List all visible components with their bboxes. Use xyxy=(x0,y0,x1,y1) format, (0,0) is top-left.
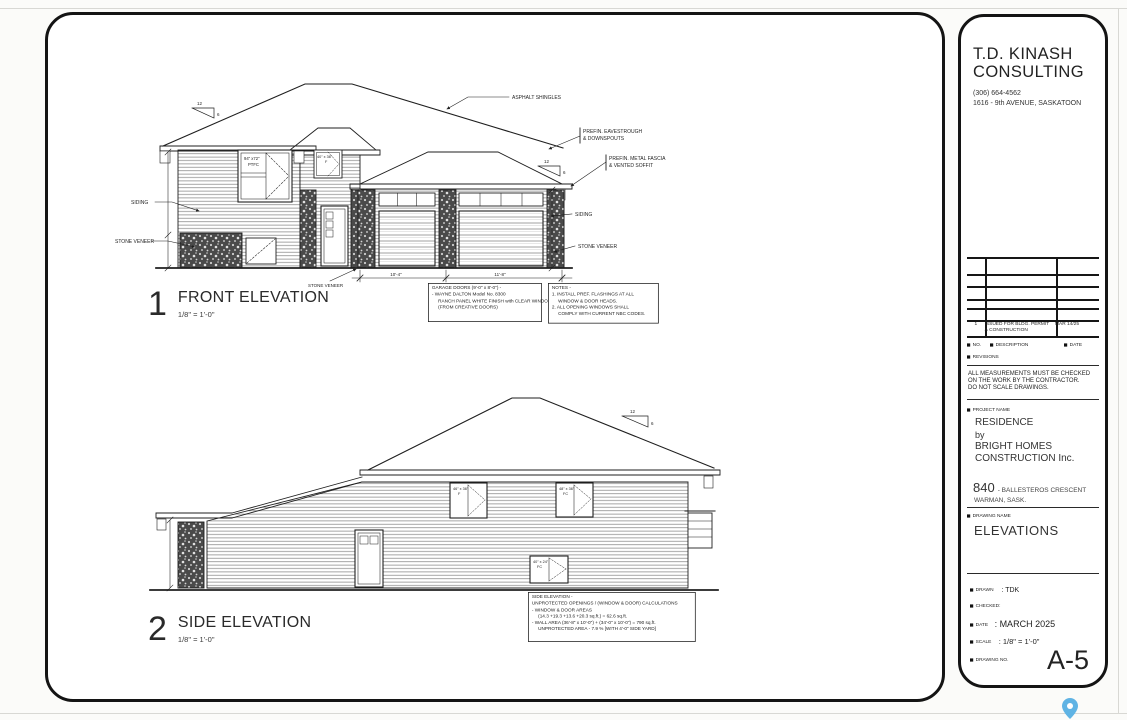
note-line: UNPROTECTED AREA - 7.9 % [WITH 4'-0" SID… xyxy=(532,627,692,633)
col-header-date: DATE xyxy=(1064,343,1082,348)
rev-table-line xyxy=(967,336,1099,338)
front-elevation-title: 1 FRONT ELEVATION 1/8" = 1'-0" xyxy=(148,288,329,320)
drawn-value: : TDK xyxy=(1001,587,1019,594)
note-line: (FROM CREATIVE DOORS) xyxy=(432,305,538,311)
side-window1-size: 46" x 36" xyxy=(453,487,469,491)
garage-dim-left: 10'-4" xyxy=(390,272,402,277)
rev-table-line xyxy=(967,299,1099,301)
firm-address: 1616 - 9th AVENUE, SASKATOON xyxy=(973,100,1081,107)
garage-doors-note: GARAGE DOORS (9'-0" x 8'-0") - - WAYNE D… xyxy=(428,283,542,322)
drawing-no-row: DRAWING NO. xyxy=(970,657,1018,663)
revision-row: 1 ISSUED FOR BLDG. PERMIT& CONSTRUCTION … xyxy=(967,322,1095,334)
square-bullet-icon xyxy=(1064,343,1067,346)
label-stone-right: STONE VENEER xyxy=(578,244,617,250)
title-block: T.D. KINASH CONSULTING (306) 664-4562 16… xyxy=(958,14,1108,688)
tb-divider xyxy=(967,573,1099,574)
date-label: DATE xyxy=(970,623,988,628)
label-fascia-line2: & VENTED SOFFIT xyxy=(609,163,653,169)
drawn-row: DRAWN : TDK xyxy=(970,587,1019,594)
scale-label: SCALE xyxy=(970,640,991,645)
project-line4: CONSTRUCTION Inc. xyxy=(975,453,1074,464)
disclaimer-line1: ALL MEASUREMENTS MUST BE CHECKED xyxy=(968,371,1090,377)
side-elevation-title: 2 SIDE ELEVATION 1/8" = 1'-0" xyxy=(148,613,311,645)
side-slope-run: 12 xyxy=(630,409,636,414)
revision-number: 1 xyxy=(967,322,985,334)
site-address: 840 - BALLESTEROS CRESCENT xyxy=(973,480,1086,495)
label-siding-right: SIDING xyxy=(575,212,592,218)
square-bullet-icon xyxy=(970,623,973,626)
side-window3-size: 40" x 24" xyxy=(533,560,549,564)
main-window-size: 94" x72" xyxy=(244,156,260,161)
square-bullet-icon xyxy=(970,658,973,661)
square-bullet-icon xyxy=(967,343,970,346)
label-stone-left: STONE VENEER xyxy=(115,239,154,245)
square-bullet-icon xyxy=(967,514,970,517)
drawing-name-label: DRAWING NAME xyxy=(967,514,1011,519)
drawing-no-label: DRAWING NO. xyxy=(970,658,1008,663)
tb-divider xyxy=(967,365,1099,366)
date-row: DATE : MARCH 2025 xyxy=(970,619,1055,629)
label-siding-left: SIDING xyxy=(131,200,148,206)
checked-label: CHECKED: xyxy=(970,604,1000,609)
side-slope-rise: 6 xyxy=(651,421,654,426)
front-elevation-name: FRONT ELEVATION xyxy=(178,289,329,307)
entry-window-size: 40" x 36" xyxy=(317,155,333,159)
project-line3: BRIGHT HOMES xyxy=(975,441,1052,452)
project-name-label: PROJECT NAME xyxy=(967,408,1010,413)
square-bullet-icon xyxy=(990,343,993,346)
side-elevation-name: SIDE ELEVATION xyxy=(178,614,311,632)
front-elevation-scale: 1/8" = 1'-0" xyxy=(178,310,329,319)
side-elevation-number: 2 xyxy=(148,613,167,645)
firm-phone: (306) 664-4562 xyxy=(973,90,1021,97)
square-bullet-icon xyxy=(970,588,973,591)
front-slope-rise-right: 6 xyxy=(563,170,566,175)
note-line: UNPROTECTED OPENINGS / (WINDOW & DOOR) C… xyxy=(532,601,692,607)
disclaimer-line3: DO NOT SCALE DRAWINGS. xyxy=(968,385,1049,391)
disclaimer-line2: ON THE WORK BY THE CONTRACTOR. xyxy=(968,378,1080,384)
label-asphalt-shingles: ASPHALT SHINGLES xyxy=(512,95,562,101)
sheet-number: A-5 xyxy=(1047,645,1089,676)
revision-desc-line2: & CONSTRUCTION xyxy=(985,328,1028,333)
rev-table-line xyxy=(967,308,1099,310)
front-slope-run-right: 12 xyxy=(544,159,550,164)
front-slope-run-left: 12 xyxy=(197,101,203,106)
site-number: 840 xyxy=(973,480,995,495)
rev-table-line xyxy=(967,274,1099,276)
firm-name-line1: T.D. KINASH xyxy=(973,45,1073,64)
tb-divider xyxy=(967,507,1099,508)
date-value: : MARCH 2025 xyxy=(995,619,1056,629)
firm-name-line2: CONSULTING xyxy=(973,63,1084,82)
side-elevation-drawing xyxy=(150,398,720,591)
label-eavestrough-line1: PREFIN. EAVESTROUGH xyxy=(583,129,642,135)
revision-description: ISSUED FOR BLDG. PERMIT& CONSTRUCTION xyxy=(985,322,1055,334)
revision-date: MAR 14/25 xyxy=(1055,322,1095,334)
col-header-no: NO. xyxy=(967,343,981,348)
unprotected-openings-note: SIDE ELEVATION - UNPROTECTED OPENINGS / … xyxy=(528,592,696,642)
side-elevation-scale: 1/8" = 1'-0" xyxy=(178,635,311,644)
site-street: - BALLESTEROS CRESCENT xyxy=(998,487,1087,494)
site-city: WARMAN, SASK. xyxy=(974,497,1026,504)
square-bullet-icon xyxy=(967,355,970,358)
note-line: RANCH PANEL WHITE FINISH with CLEAR WIND… xyxy=(432,298,538,304)
garage-dim-right: 11'-8" xyxy=(494,272,506,277)
checked-row: CHECKED: xyxy=(970,603,1008,609)
square-bullet-icon xyxy=(970,604,973,607)
tb-divider xyxy=(967,399,1099,400)
revision-desc-line1: ISSUED FOR BLDG. PERMIT xyxy=(985,322,1050,327)
square-bullet-icon xyxy=(970,640,973,643)
scale-value: : 1/8" = 1'-0" xyxy=(999,637,1040,646)
location-pin-icon[interactable] xyxy=(1062,698,1078,719)
project-line1: RESIDENCE xyxy=(975,417,1033,428)
front-slope-rise-left: 6 xyxy=(217,112,220,117)
label-eavestrough-line2: & DOWNSPOUTS xyxy=(583,136,625,142)
rev-table-line xyxy=(967,257,1099,259)
side-window3-type: FC xyxy=(537,565,542,569)
side-window2-type: FC xyxy=(563,492,568,496)
project-line2: by xyxy=(975,430,985,440)
front-elevation-number: 1 xyxy=(148,288,167,320)
side-window2-size: 48" x 36" xyxy=(559,487,575,491)
note-line: COMPLY WITH CURRENT NBC CODES. xyxy=(552,311,655,317)
square-bullet-icon xyxy=(967,408,970,411)
drawn-label: DRAWN xyxy=(970,588,994,593)
col-header-description: DESCRIPTION xyxy=(990,343,1028,348)
main-window-type: PTFC xyxy=(248,162,259,167)
revisions-label: REVISIONS xyxy=(967,355,999,360)
general-notes: NOTES - 1. INSTALL PREF. FLASHINGS AT AL… xyxy=(548,283,659,324)
label-fascia-line1: PREFIN. METAL FASCIA xyxy=(609,156,666,162)
drawing-name: ELEVATIONS xyxy=(974,523,1059,538)
scale-row: SCALE : 1/8" = 1'-0" xyxy=(970,637,1039,646)
rev-table-line xyxy=(967,286,1099,288)
